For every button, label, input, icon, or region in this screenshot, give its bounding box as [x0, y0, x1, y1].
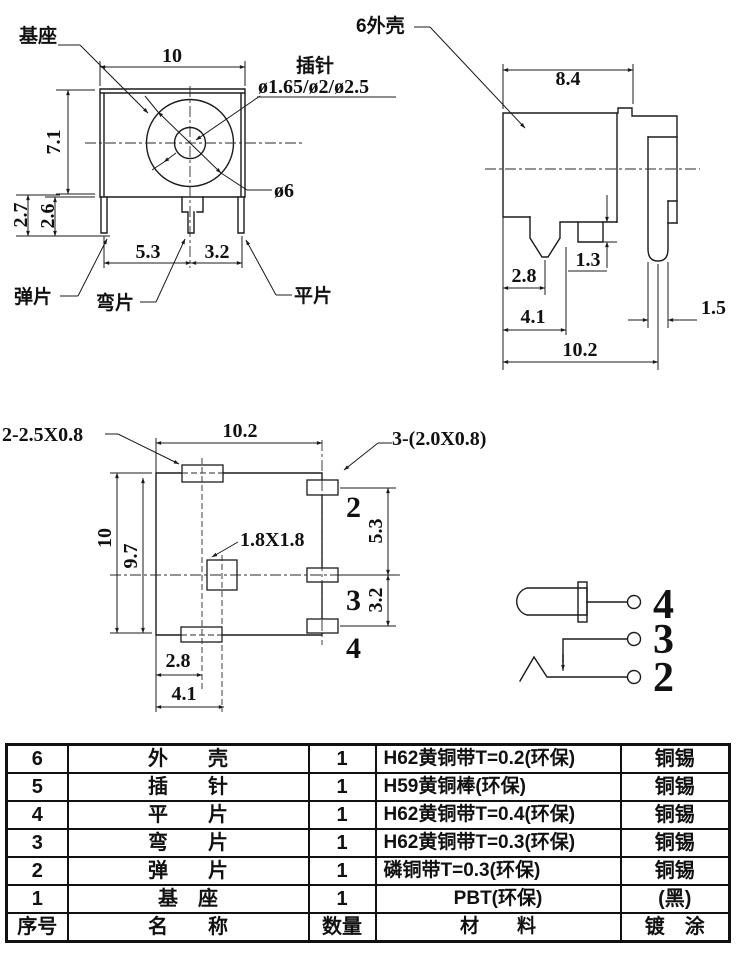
dim-side-84: 8.4	[556, 68, 581, 90]
bom-name: 外 壳	[68, 745, 309, 774]
pin-number-2: 2	[346, 491, 361, 524]
bom-material: H62黄铜带T=0.3(环保)	[376, 829, 621, 857]
bom-plating: 铜锡	[621, 829, 730, 857]
schematic-lines	[517, 582, 641, 684]
bom-header-no: 序号	[7, 913, 68, 942]
dim-bottom-10: 10	[94, 528, 116, 548]
bom-qty: 1	[309, 857, 376, 885]
front-centerlines	[85, 86, 305, 268]
label-base: 基座	[18, 24, 57, 47]
bottom-centerlines	[110, 440, 400, 712]
pad-bottom-left	[181, 627, 222, 642]
pin-schematic: 4 3 2	[480, 555, 740, 705]
dim-front-width: 10	[162, 45, 182, 67]
bom-header-qty: 数量	[309, 913, 376, 942]
bom-material: H62黄铜带T=0.2(环保)	[376, 745, 621, 774]
label-pin: 插针	[296, 54, 334, 77]
bom-plating: 铜锡	[621, 745, 730, 774]
side-view: 6外壳 8.4 1.3 2.8 4.1 10.2 1.5	[350, 0, 740, 392]
pad-top-left	[182, 465, 223, 482]
bom-no: 2	[7, 857, 68, 885]
dim-bottom-41: 4.1	[172, 683, 197, 705]
dim-bottom-97: 9.7	[120, 544, 142, 569]
dim-side-28: 2.8	[512, 265, 537, 287]
bom-no: 5	[7, 773, 68, 801]
bom-no: 3	[7, 829, 68, 857]
bom-plating: 铜锡	[621, 801, 730, 829]
bom-qty: 1	[309, 801, 376, 829]
schematic-pin-2: 2	[653, 655, 674, 701]
bom-material: PBT(环保)	[376, 885, 621, 913]
label-shell: 6外壳	[356, 14, 405, 37]
front-view: 基座 插针 ø1.65/ø2/ø2.5 ø6 弹片 弯片 平片 10 7.1 2…	[0, 0, 400, 335]
bom-no: 1	[7, 885, 68, 913]
dim-front-27: 2.7	[10, 203, 32, 228]
dim-side-15: 1.5	[701, 297, 726, 319]
pad-pin4	[307, 619, 338, 633]
label-dia6: ø6	[274, 180, 294, 202]
bom-material: H59黄铜棒(环保)	[376, 773, 621, 801]
dim-bottom-102: 10.2	[223, 420, 258, 442]
spring-contact-symbol	[520, 657, 627, 681]
dim-bottom-53: 5.3	[365, 519, 387, 544]
label-square-size: 1.8X1.8	[240, 529, 304, 551]
side-body-lines	[503, 108, 677, 261]
terminal-2	[628, 671, 641, 684]
bom-name: 弯 片	[68, 829, 309, 857]
pad-pin2	[307, 480, 338, 495]
bom-row: 2 弹 片 1 磷铜带T=0.3(环保) 铜锡	[7, 857, 730, 885]
dim-front-26: 2.6	[37, 204, 59, 229]
bom-name: 插 针	[68, 773, 309, 801]
bom-plating: (黑)	[621, 885, 730, 913]
bom-table: 6 外 壳 1 H62黄铜带T=0.2(环保) 铜锡 5 插 针 1 H59黄铜…	[5, 743, 728, 943]
pin-number-4: 4	[346, 632, 361, 665]
bom-row: 1 基 座 1 PBT(环保) (黑)	[7, 885, 730, 913]
bottom-body-lines	[156, 465, 338, 642]
engineering-drawing: 基座 插针 ø1.65/ø2/ø2.5 ø6 弹片 弯片 平片 10 7.1 2…	[0, 0, 740, 964]
bom-row: 3 弯 片 1 H62黄铜带T=0.3(环保) 铜锡	[7, 829, 730, 857]
dim-side-13: 1.3	[576, 249, 601, 271]
bottom-dimension-lines	[105, 434, 396, 712]
terminal-4	[628, 596, 641, 609]
dim-front-height: 7.1	[43, 130, 65, 155]
bom-row: 5 插 针 1 H59黄铜棒(环保) 铜锡	[7, 773, 730, 801]
label-pads-right-size: 3-(2.0X0.8)	[392, 428, 486, 450]
bom-no: 6	[7, 745, 68, 774]
terminal-3	[628, 633, 641, 646]
label-spring-piece: 弹片	[14, 285, 52, 308]
bom-qty: 1	[309, 745, 376, 774]
label-pads-left-size: 2-2.5X0.8	[2, 424, 83, 446]
dim-bottom-28: 2.8	[166, 650, 191, 672]
bom-row: 6 外 壳 1 H62黄铜带T=0.2(环保) 铜锡	[7, 745, 730, 774]
bom-header-name: 名 称	[68, 913, 309, 942]
bom-no: 4	[7, 801, 68, 829]
bom-header-plating: 镀 涂	[621, 913, 730, 942]
bom-header-material: 材 料	[376, 913, 621, 942]
label-bend-piece: 弯片	[96, 291, 134, 314]
bom-material: 磷铜带T=0.3(环保)	[376, 857, 621, 885]
dim-side-41: 4.1	[521, 306, 546, 328]
bom-plating: 铜锡	[621, 857, 730, 885]
bom-qty: 1	[309, 829, 376, 857]
bom-header-row: 序号 名 称 数量 材 料 镀 涂	[7, 913, 730, 942]
label-flat-piece: 平片	[294, 284, 332, 307]
barrel-pin-symbol	[517, 588, 587, 615]
bom-qty: 1	[309, 885, 376, 913]
dim-side-102: 10.2	[563, 339, 598, 361]
pin-number-3: 3	[346, 584, 361, 617]
bottom-pcb-view: 2-2.5X0.8 3-(2.0X0.8) 1.8X1.8 10.2 10 9.…	[0, 400, 540, 730]
bom-name: 基 座	[68, 885, 309, 913]
bom-plating: 铜锡	[621, 773, 730, 801]
bom-name: 弹 片	[68, 857, 309, 885]
dim-front-53: 5.3	[136, 241, 161, 263]
bom-name: 平 片	[68, 801, 309, 829]
dim-bottom-32: 3.2	[365, 588, 387, 613]
bom-row: 4 平 片 1 H62黄铜带T=0.4(环保) 铜锡	[7, 801, 730, 829]
bom-qty: 1	[309, 773, 376, 801]
dim-front-32: 3.2	[205, 241, 230, 263]
front-body-lines	[100, 89, 245, 233]
bom-material: H62黄铜带T=0.4(环保)	[376, 801, 621, 829]
